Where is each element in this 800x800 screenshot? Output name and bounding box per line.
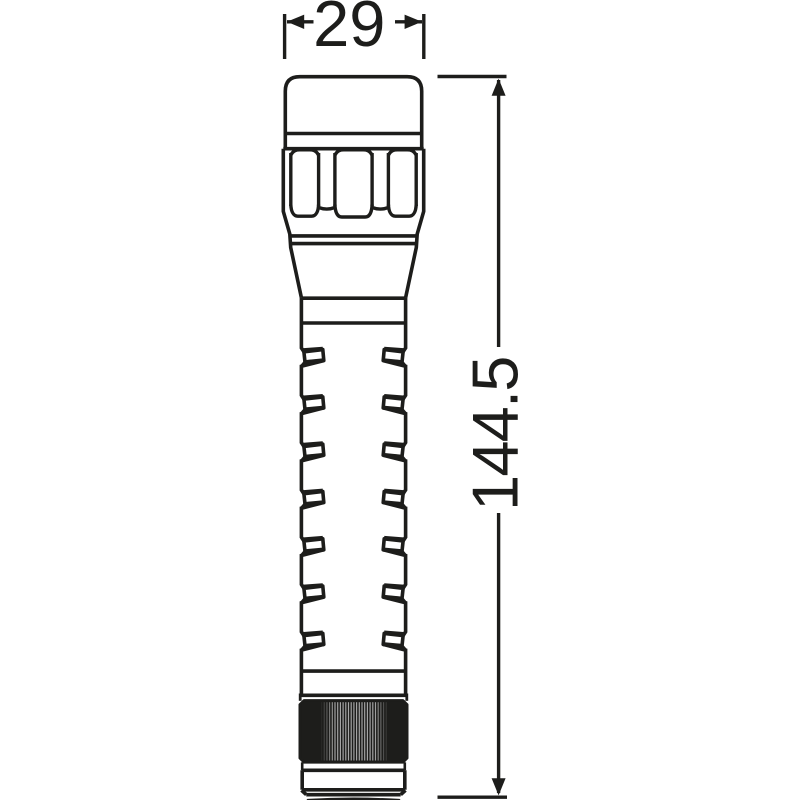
svg-text:29: 29 xyxy=(313,0,385,60)
svg-text:144.5: 144.5 xyxy=(459,357,532,511)
